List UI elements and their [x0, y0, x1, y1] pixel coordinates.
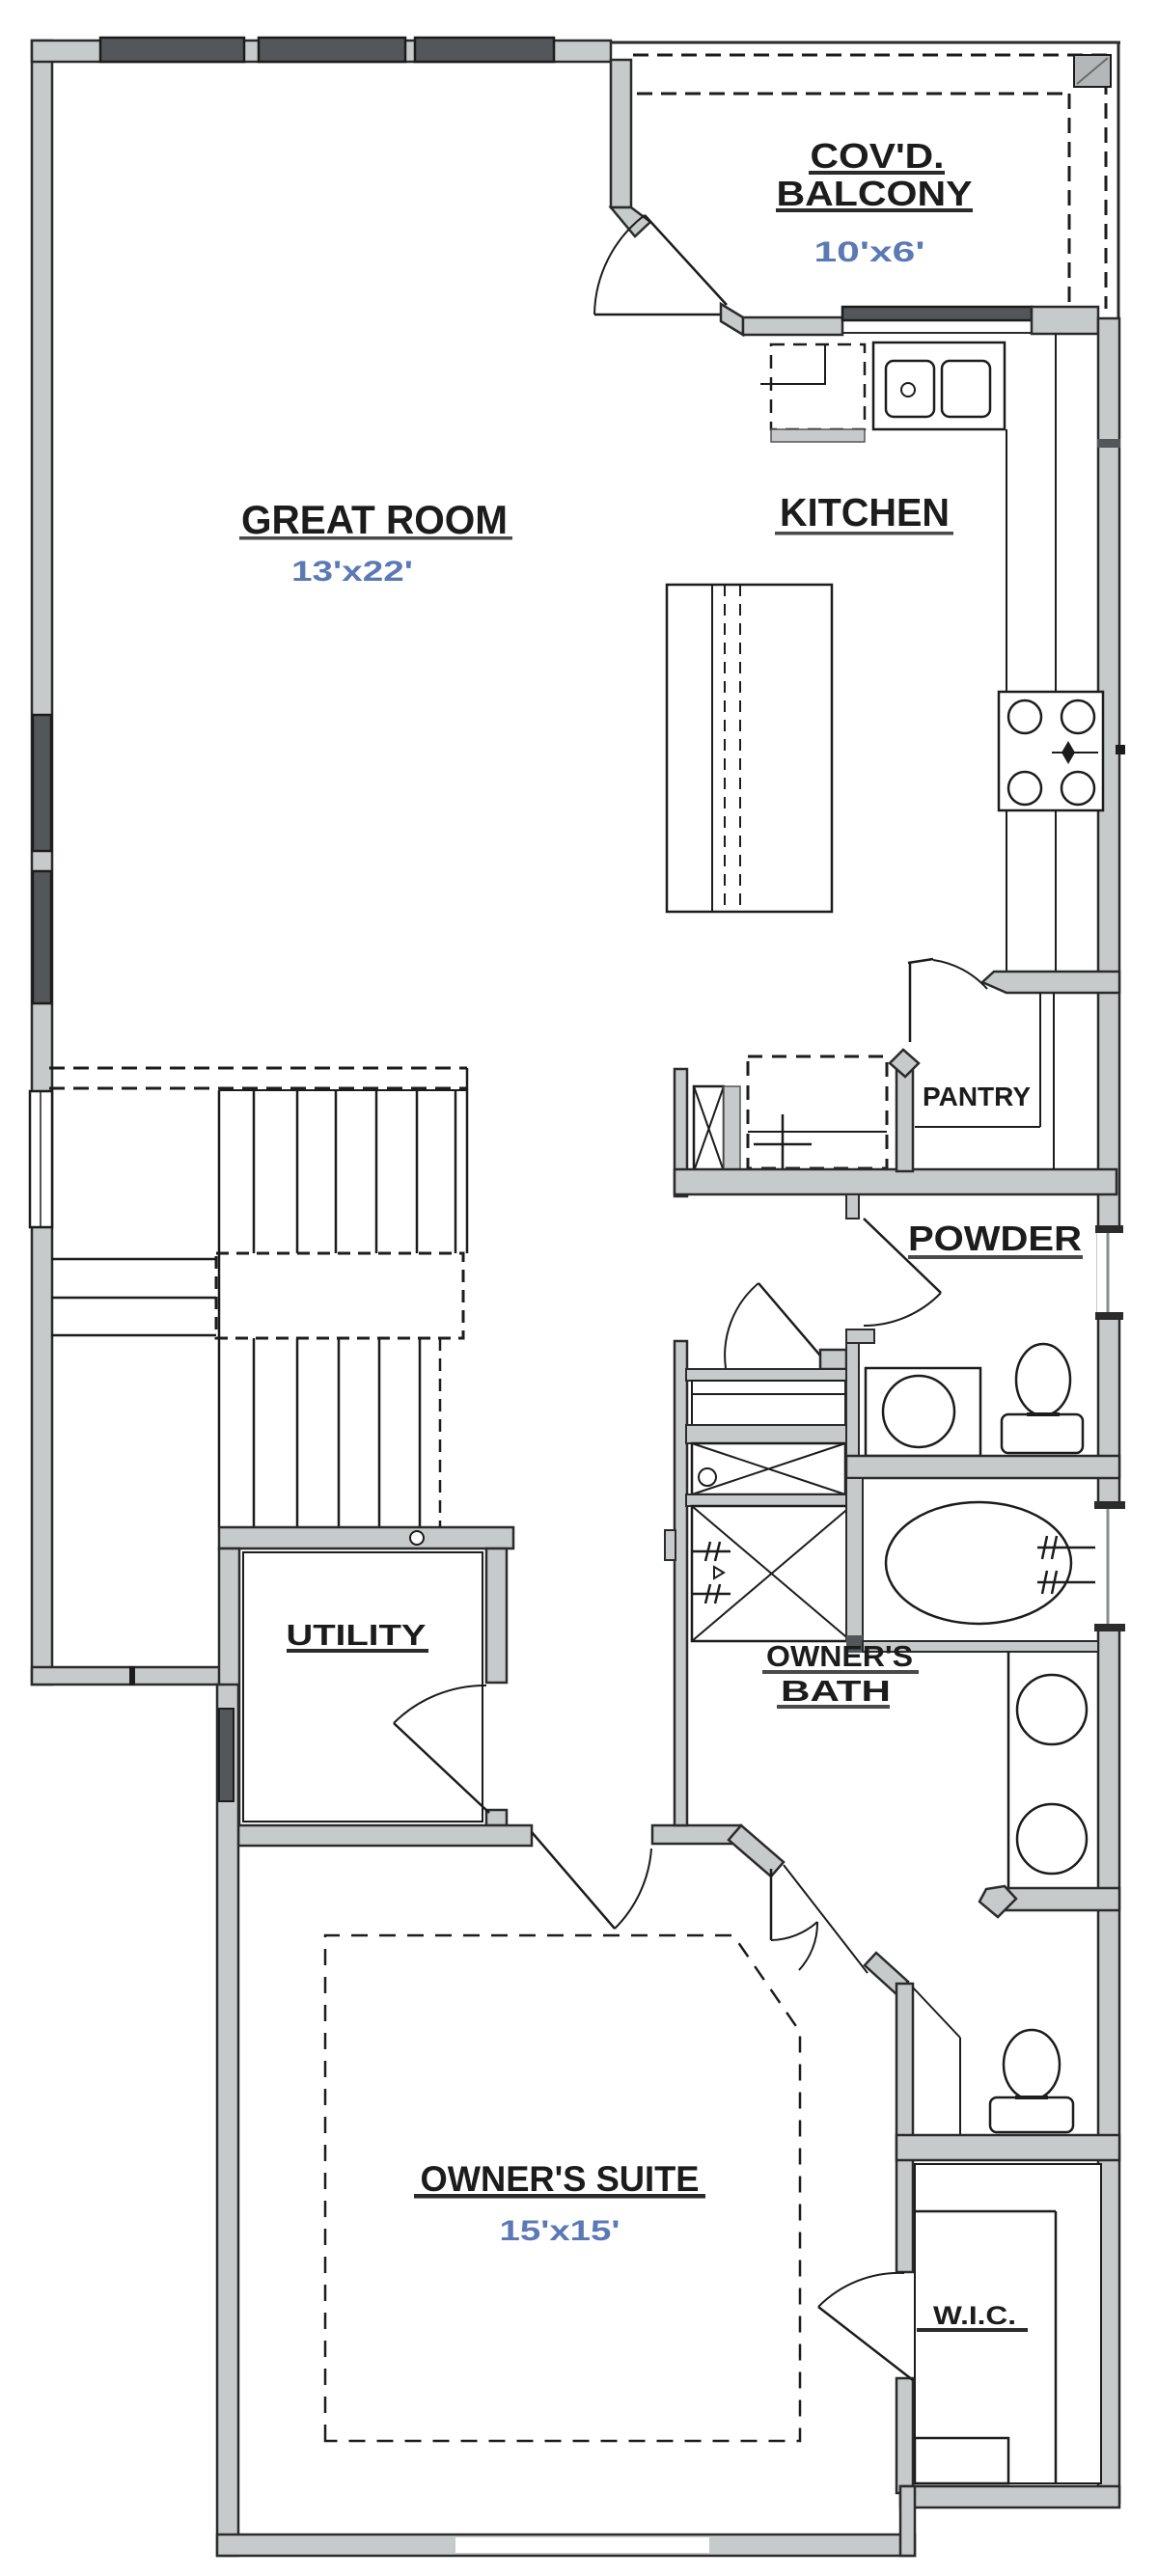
- svg-text:COV'D.: COV'D.: [811, 136, 945, 176]
- svg-text:W.I.C.: W.I.C.: [933, 2301, 1016, 2330]
- svg-text:OWNER'S: OWNER'S: [766, 1639, 913, 1673]
- svg-text:BALCONY: BALCONY: [777, 174, 973, 213]
- svg-text:GREAT ROOM: GREAT ROOM: [241, 497, 508, 542]
- svg-text:POWDER: POWDER: [908, 1219, 1082, 1258]
- svg-text:10'x6': 10'x6': [814, 236, 925, 268]
- svg-text:15'x15': 15'x15': [500, 2215, 620, 2247]
- svg-text:UTILITY: UTILITY: [287, 1618, 427, 1652]
- svg-text:KITCHEN: KITCHEN: [780, 490, 950, 534]
- svg-text:BATH: BATH: [781, 1674, 891, 1708]
- svg-text:13'x22': 13'x22': [291, 556, 413, 588]
- svg-text:PANTRY: PANTRY: [923, 1082, 1031, 1111]
- svg-text:OWNER'S SUITE: OWNER'S SUITE: [421, 2159, 700, 2199]
